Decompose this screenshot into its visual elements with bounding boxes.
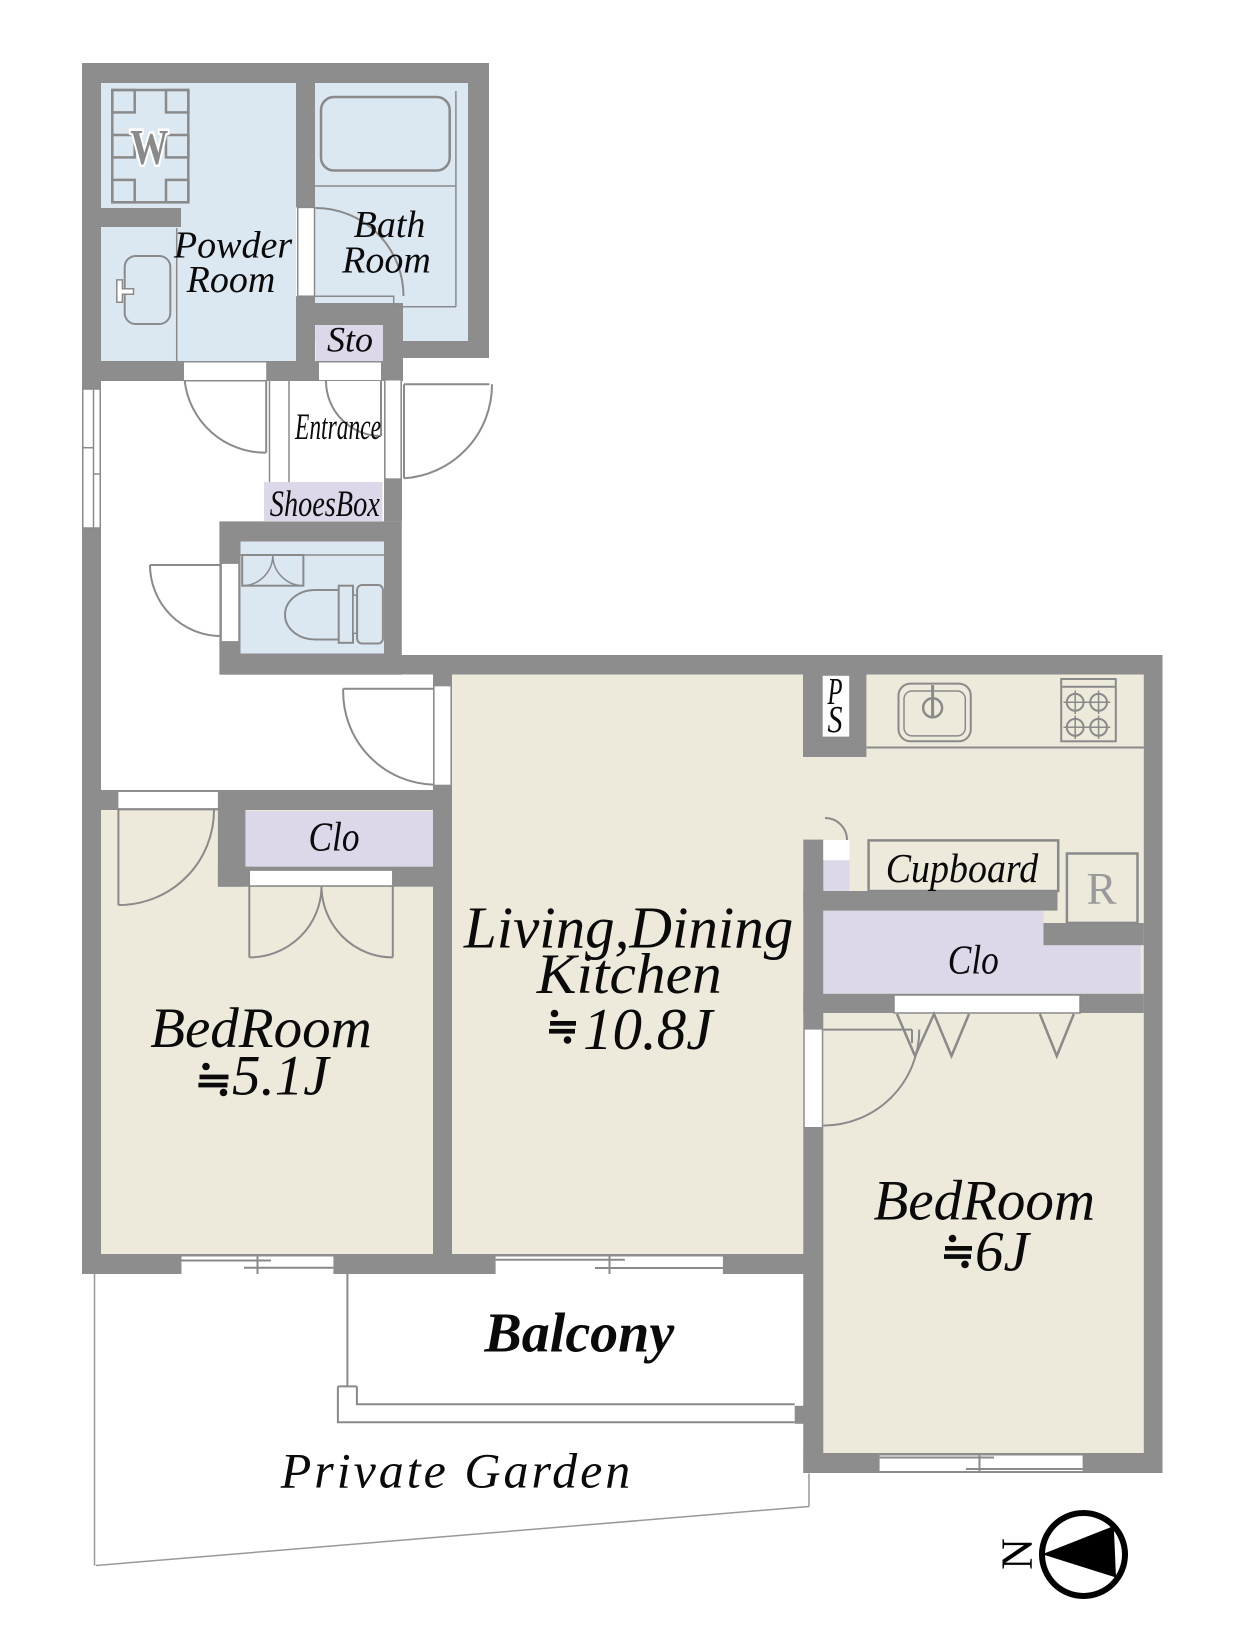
svg-text:N: N <box>992 1538 1041 1570</box>
svg-text:Cupboard: Cupboard <box>886 845 1039 891</box>
svg-text:Room: Room <box>341 240 431 282</box>
svg-text:S: S <box>828 699 843 741</box>
svg-text:5.1J: 5.1J <box>232 1044 331 1107</box>
svg-text:R: R <box>1086 864 1116 914</box>
svg-text:Room: Room <box>186 259 276 301</box>
svg-text:Entrance: Entrance <box>294 407 381 448</box>
svg-text:6J: 6J <box>975 1220 1032 1283</box>
svg-text:Clo: Clo <box>948 937 999 983</box>
svg-text:Private Garden: Private Garden <box>280 1442 634 1498</box>
svg-text:ShoesBox: ShoesBox <box>270 484 380 525</box>
svg-text:W: W <box>130 118 168 174</box>
svg-text:Clo: Clo <box>309 813 360 859</box>
svg-text:Balcony: Balcony <box>483 1303 675 1365</box>
svg-text:Sto: Sto <box>327 320 373 360</box>
svg-text:10.8J: 10.8J <box>583 996 715 1062</box>
